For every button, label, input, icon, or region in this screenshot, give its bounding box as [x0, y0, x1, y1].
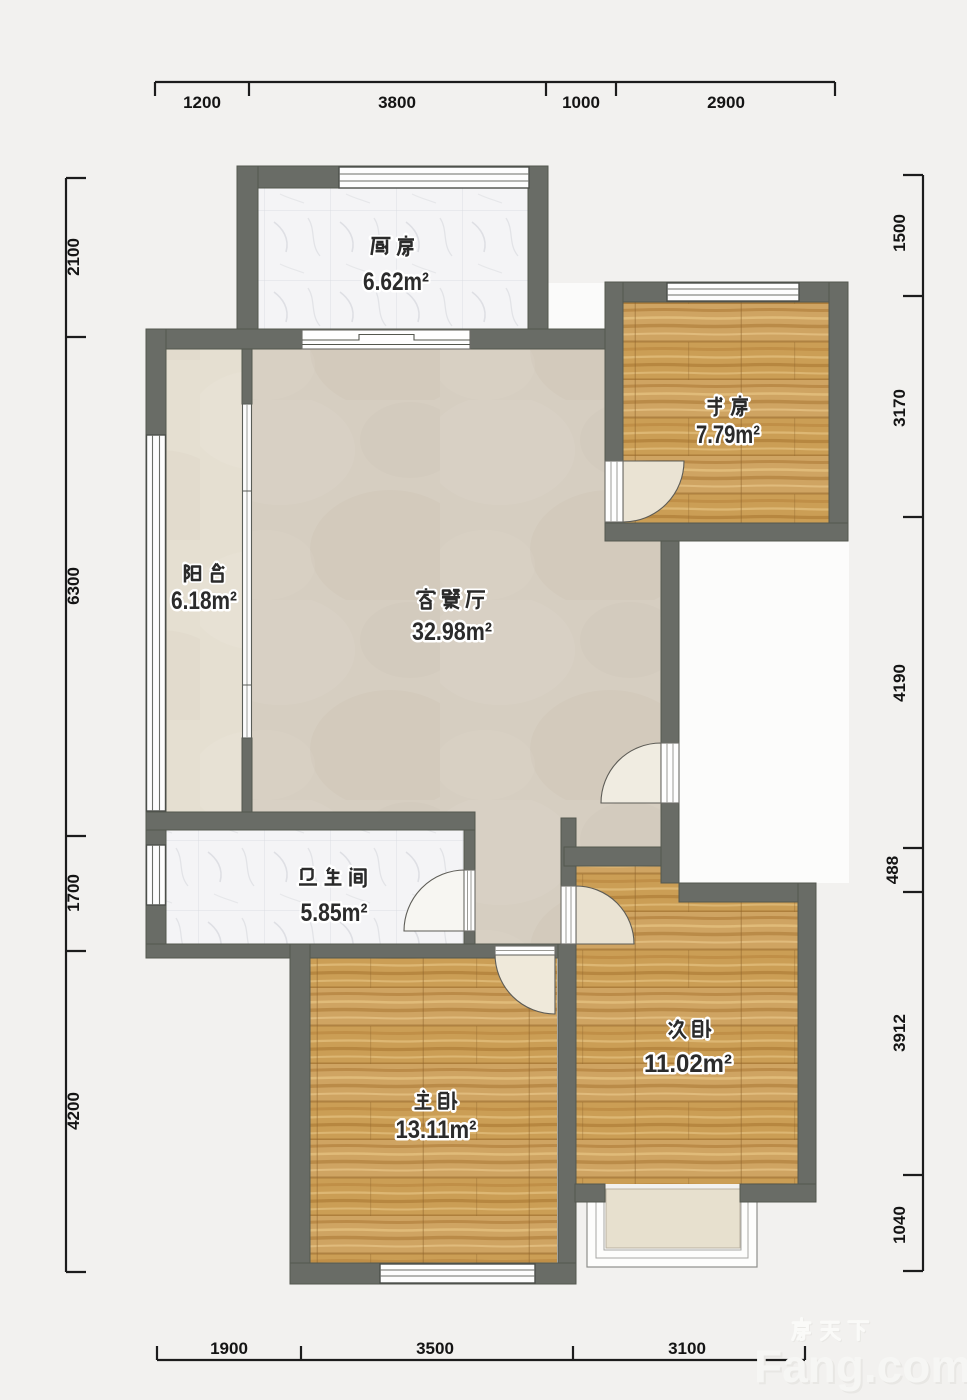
svg-text:11.02m²: 11.02m² [644, 1050, 732, 1078]
svg-text:5.85m²: 5.85m² [301, 899, 368, 927]
svg-text:6.62m²: 6.62m² [363, 268, 429, 296]
svg-text:1700: 1700 [64, 874, 83, 912]
svg-text:3912: 3912 [890, 1014, 909, 1052]
svg-text:4200: 4200 [64, 1092, 83, 1130]
svg-text:3100: 3100 [668, 1339, 706, 1358]
svg-text:7.79m²: 7.79m² [696, 421, 760, 449]
svg-text:2100: 2100 [64, 238, 83, 276]
svg-text:2900: 2900 [707, 93, 745, 112]
svg-text:1500: 1500 [890, 214, 909, 252]
svg-text:3800: 3800 [378, 93, 416, 112]
svg-text:1040: 1040 [890, 1206, 909, 1244]
svg-text:488: 488 [883, 856, 902, 884]
svg-text:6.18m²: 6.18m² [171, 587, 237, 615]
svg-text:13.11m²: 13.11m² [396, 1116, 477, 1144]
svg-text:6300: 6300 [64, 567, 83, 605]
svg-text:1000: 1000 [562, 93, 600, 112]
svg-text:3500: 3500 [416, 1339, 454, 1358]
svg-text:3170: 3170 [890, 389, 909, 427]
svg-text:1900: 1900 [210, 1339, 248, 1358]
svg-text:1200: 1200 [183, 93, 221, 112]
svg-text:4190: 4190 [890, 664, 909, 702]
svg-text:Fang.com: Fang.com [754, 1340, 967, 1392]
svg-text:32.98m²: 32.98m² [412, 618, 492, 646]
